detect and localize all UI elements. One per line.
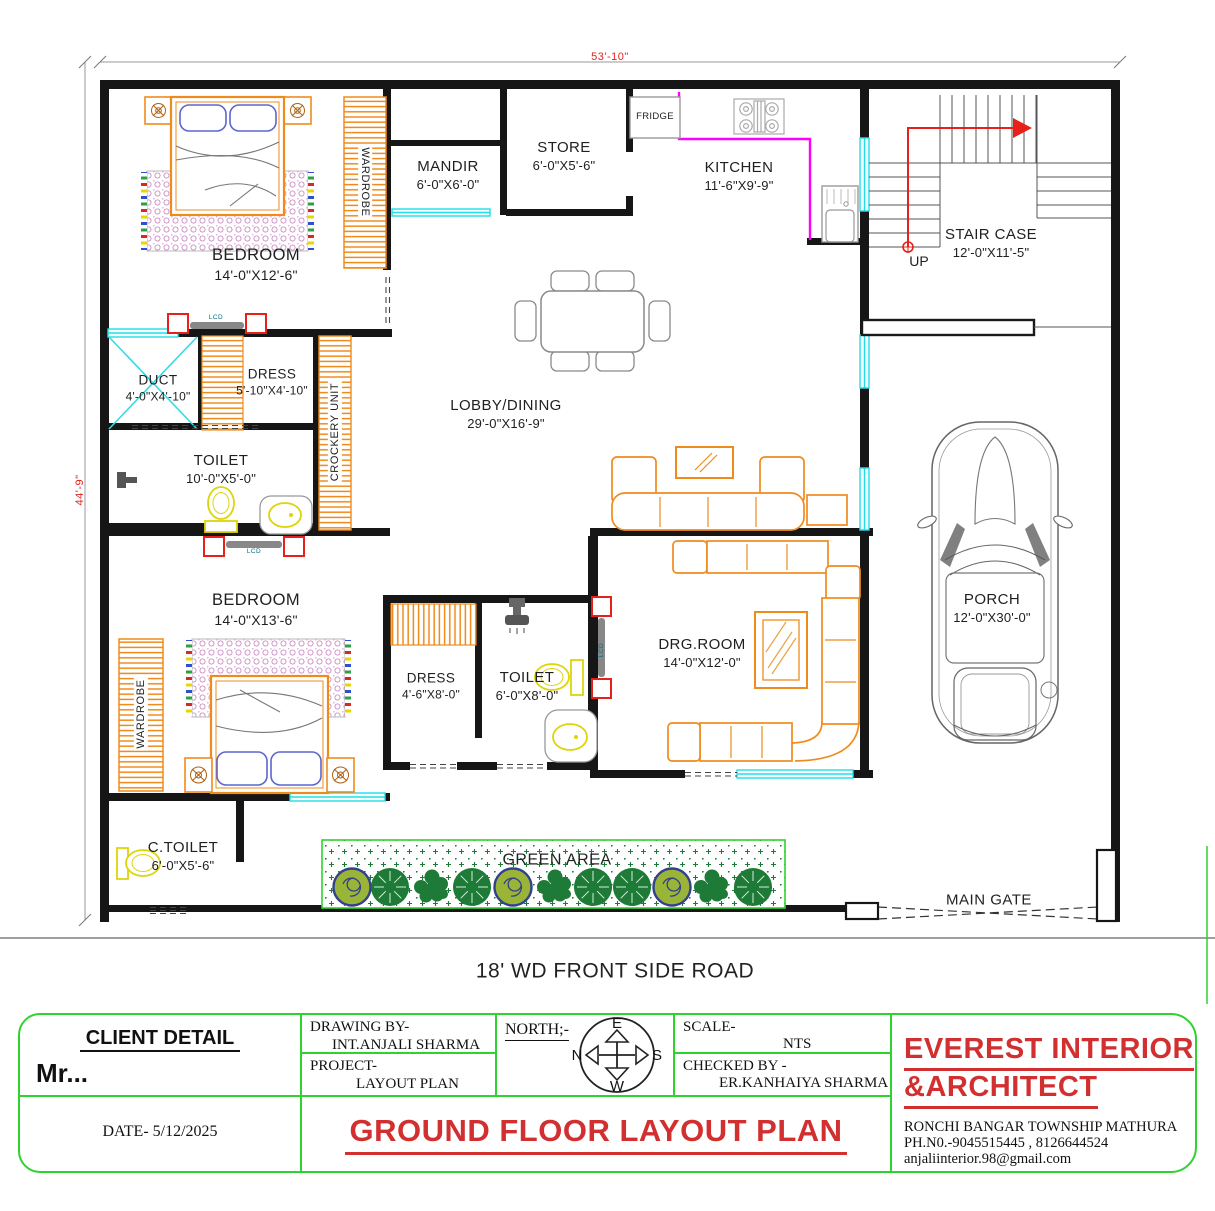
room-label-store: STORE 6'-0"X5'-6" [533, 138, 596, 174]
car-top-view [916, 422, 1074, 743]
firm-box: EVEREST INTERIOR &ARCHITECT RONCHI BANGA… [890, 1013, 1197, 1173]
client-detail-box: CLIENT DETAIL Mr... [18, 1013, 302, 1097]
date-value: DATE- 5/12/2025 [20, 1123, 300, 1141]
date-box: DATE- 5/12/2025 [18, 1095, 302, 1173]
compass-south: S [652, 1047, 662, 1064]
lcd-label-bedroom2: LCD [247, 548, 261, 556]
wardrobe-top-label: WARDROBE [358, 145, 372, 218]
room-label-dress2: DRESS 4'-6"X8'-0" [402, 669, 460, 702]
room-label-toilet1: TOILET 10'-0"X5'-0" [186, 451, 256, 487]
fridge-label: FRIDGE [636, 111, 674, 123]
project-value: LAYOUT PLAN [302, 1075, 495, 1093]
scale-box: SCALE- NTS [673, 1013, 892, 1054]
dining-set [515, 271, 670, 371]
room-label-bedroom1: BEDROOM 14'-0"X12'-6" [212, 245, 300, 285]
room-label-drgroom: DRG.ROOM 14'-0"X12'-0" [658, 635, 745, 671]
firm-phone: PH.N0.-9045515445 , 8126644524 [904, 1135, 1195, 1151]
north-label: NORTH;- [505, 1021, 569, 1041]
checked-by-label: CHECKED BY - [675, 1054, 890, 1075]
kitchen-sink [822, 186, 858, 242]
checked-by-value: ER.KANHAIYA SHARMA [675, 1075, 890, 1092]
wardrobe-bottom-label: WARDROBE [134, 677, 148, 750]
scale-label: SCALE- [675, 1015, 890, 1036]
drawing-by-box: DRAWING BY- INT.ANJALI SHARMA [300, 1013, 497, 1054]
bedroom2-furniture [119, 639, 354, 793]
drawing-sheet: 53'-10" 44'-9" BEDROOM 14'-0"X12'-6" MAN… [0, 0, 1215, 1211]
crockery-unit-label: CROCKERY UNIT [328, 381, 342, 483]
client-detail-heading: CLIENT DETAIL [20, 1027, 300, 1050]
dim-top-label: 53'-10" [591, 50, 629, 64]
lobby-sofa-set [612, 447, 847, 530]
gas-stove [734, 99, 784, 134]
room-label-bedroom2: BEDROOM 14'-0"X13'-6" [212, 590, 300, 630]
bedroom1-furniture [141, 97, 386, 268]
firm-email: anjaliinterior.98@gmail.com [904, 1151, 1195, 1167]
checked-by-box: CHECKED BY - ER.KANHAIYA SHARMA [673, 1052, 892, 1097]
firm-name-line1: EVEREST INTERIOR [904, 1033, 1194, 1071]
drawing-by-label: DRAWING BY- [302, 1015, 495, 1036]
client-name: Mr... [36, 1058, 300, 1089]
room-label-kitchen: KITCHEN 11'-6"X9'-9" [704, 158, 773, 194]
room-label-lobby: LOBBY/DINING 29'-0"X16'-9" [450, 396, 562, 432]
room-label-mandir: MANDIR 6'-0"X6'-0" [417, 157, 480, 193]
dim-left-label: 44'-9" [73, 474, 87, 505]
main-gate [846, 850, 1116, 921]
green-area-label: GREEN AREA [502, 851, 611, 872]
scale-value: NTS [675, 1036, 890, 1053]
sheet-title-box: GROUND FLOOR LAYOUT PLAN [300, 1095, 892, 1173]
lcd-label-drg: LCD [598, 643, 606, 657]
firm-name-line2: &ARCHITECT [904, 1071, 1098, 1109]
room-label-ctoilet: C.TOILET 6'-0"X5'-6" [148, 838, 218, 874]
north-box: NORTH;- E N S W [495, 1013, 675, 1097]
road-label: 18' WD FRONT SIDE ROAD [476, 957, 754, 984]
room-label-dress1: DRESS 5'-10"X4'-10" [236, 365, 308, 398]
room-label-toilet2: TOILET 6'-0"X8'-0" [496, 668, 559, 704]
lcd-label-bedroom1: LCD [209, 314, 223, 322]
project-box: PROJECT- LAYOUT PLAN [300, 1052, 497, 1097]
project-label: PROJECT- [302, 1054, 495, 1075]
firm-address: RONCHI BANGAR TOWNSHIP MATHURA [904, 1119, 1195, 1135]
room-label-porch: PORCH 12'-0"X30'-0" [953, 590, 1031, 626]
compass-west: W [610, 1078, 625, 1095]
stair-up-label: UP [909, 252, 928, 270]
room-label-duct: DUCT 4'-0"X4'-10" [126, 371, 191, 404]
main-gate-label: MAIN GATE [946, 890, 1032, 910]
stair-landing-wall [862, 320, 1111, 335]
room-label-staircase: STAIR CASE 12'-0"X11'-5" [945, 225, 1037, 261]
compass-north: N [572, 1047, 583, 1064]
compass-east: E [612, 1015, 622, 1032]
sheet-title: GROUND FLOOR LAYOUT PLAN [345, 1113, 846, 1155]
